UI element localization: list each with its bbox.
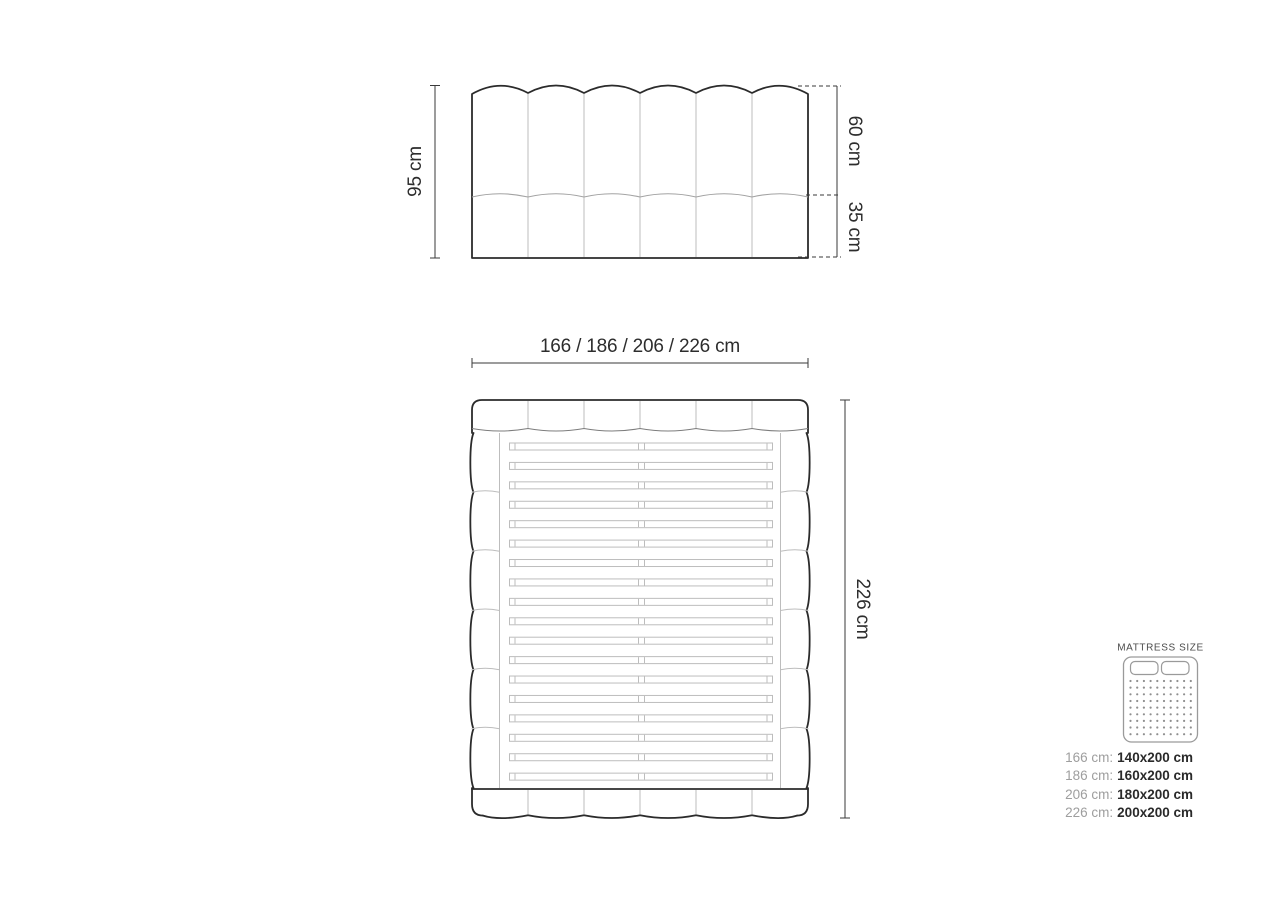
- pillow-icon-left: [1131, 662, 1159, 675]
- width-dim-label: 166 / 186 / 206 / 226 cm: [540, 336, 740, 357]
- slat: [510, 462, 773, 469]
- mattress-dot: [1136, 713, 1138, 715]
- mattress-dot: [1170, 680, 1172, 682]
- mattress-dot: [1143, 693, 1145, 695]
- rail-joint: [472, 668, 500, 670]
- rail-joint: [781, 491, 809, 493]
- mattress-dot: [1183, 700, 1185, 702]
- mattress-dot: [1170, 700, 1172, 702]
- mattress-dot: [1190, 707, 1192, 709]
- mattress-dot: [1150, 693, 1152, 695]
- lower-dim-label: 35 cm: [844, 202, 865, 253]
- mattress-dot: [1190, 687, 1192, 689]
- slat: [510, 598, 773, 605]
- rail-joint: [472, 727, 500, 729]
- slats: [510, 443, 773, 780]
- mattress-dot: [1150, 726, 1152, 728]
- mattress-dot: [1150, 713, 1152, 715]
- mattress-dot: [1170, 720, 1172, 722]
- mattress-dot: [1163, 680, 1165, 682]
- mattress-dot: [1150, 680, 1152, 682]
- mattress-dot: [1150, 720, 1152, 722]
- mattress-dot: [1190, 693, 1192, 695]
- mattress-dot: [1143, 707, 1145, 709]
- mattress-dot: [1136, 693, 1138, 695]
- mattress-dot: [1176, 707, 1178, 709]
- right-rail-joints: [781, 491, 809, 729]
- upper-dim-label: 60 cm: [844, 116, 865, 167]
- headboard-bar-wave: [472, 429, 808, 432]
- mattress-dot: [1129, 726, 1131, 728]
- mattress-dot: [1163, 713, 1165, 715]
- mattress-dot: [1183, 707, 1185, 709]
- mattress-dot: [1163, 693, 1165, 695]
- footboard-dividers: [528, 790, 752, 814]
- mattress-dot: [1176, 733, 1178, 735]
- mattress-dot: [1156, 680, 1158, 682]
- mattress-dot: [1143, 713, 1145, 715]
- slat: [510, 443, 773, 450]
- mattress-dot: [1150, 733, 1152, 735]
- mattress-dot: [1183, 713, 1185, 715]
- rail-joint: [472, 550, 500, 552]
- mattress-size-row: 186 cm:160x200 cm: [1065, 767, 1193, 785]
- slat-outline: [510, 521, 773, 528]
- length-dimension: 226 cm: [840, 400, 873, 818]
- mattress-dot: [1170, 733, 1172, 735]
- mattress-dot: [1190, 700, 1192, 702]
- mattress-dot: [1156, 687, 1158, 689]
- slat-outline: [510, 676, 773, 683]
- left-rail-joints: [472, 491, 500, 729]
- mattress-dot: [1143, 680, 1145, 682]
- mattress-size-row: 166 cm:140x200 cm: [1065, 749, 1193, 767]
- mattress-dot: [1163, 700, 1165, 702]
- mattress-dot: [1176, 687, 1178, 689]
- footboard-bottom-wave: [483, 815, 797, 818]
- slat: [510, 482, 773, 489]
- mattress-dot: [1129, 687, 1131, 689]
- slat: [510, 773, 773, 780]
- mattress-dot: [1183, 687, 1185, 689]
- mattress-dot: [1183, 693, 1185, 695]
- mattress-dot: [1156, 693, 1158, 695]
- size-value: 180x200 cm: [1117, 787, 1193, 802]
- mattress-dot: [1176, 680, 1178, 682]
- mattress-dot: [1190, 733, 1192, 735]
- mattress-dot: [1136, 707, 1138, 709]
- mattress-dot: [1156, 733, 1158, 735]
- bed-dimensions-diagram: 95 cm 60 cm 35 cm 166 / 186 / 206 / 226 …: [0, 0, 1280, 905]
- rail-joint: [472, 609, 500, 611]
- slat: [510, 734, 773, 741]
- legend: MATTRESS SIZE: [1117, 643, 1204, 743]
- mattress-dot: [1136, 700, 1138, 702]
- mattress-dot: [1163, 726, 1165, 728]
- mattress-dot: [1183, 680, 1185, 682]
- mattress-dot: [1163, 687, 1165, 689]
- mattress-size-row: 206 cm:180x200 cm: [1065, 786, 1193, 804]
- mattress-dot: [1129, 707, 1131, 709]
- slat-outline: [510, 579, 773, 586]
- footboard-left-corner: [472, 788, 483, 816]
- pillow-icon-right: [1162, 662, 1190, 675]
- slat-outline: [510, 637, 773, 644]
- slat: [510, 618, 773, 625]
- slat: [510, 676, 773, 683]
- rail-joint: [781, 550, 809, 552]
- mattress-dot: [1190, 713, 1192, 715]
- slat-outline: [510, 540, 773, 547]
- rail-joint: [472, 491, 500, 493]
- slat-outline: [510, 695, 773, 702]
- slat: [510, 754, 773, 761]
- mattress-dot: [1143, 687, 1145, 689]
- mattress-dot: [1156, 720, 1158, 722]
- mattress-dot: [1170, 726, 1172, 728]
- slat: [510, 521, 773, 528]
- mattress-dot: [1156, 700, 1158, 702]
- mattress-dot: [1183, 733, 1185, 735]
- size-key: 206 cm:: [1065, 787, 1113, 802]
- legend-title: MATTRESS SIZE: [1117, 643, 1204, 654]
- mattress-dot: [1163, 733, 1165, 735]
- size-key: 226 cm:: [1065, 805, 1113, 820]
- slat-outline: [510, 443, 773, 450]
- slat: [510, 579, 773, 586]
- mattress-dot: [1170, 707, 1172, 709]
- mattress-dot: [1143, 726, 1145, 728]
- mattress-dot: [1150, 707, 1152, 709]
- slat-outline: [510, 773, 773, 780]
- width-dimension: 166 / 186 / 206 / 226 cm: [472, 336, 808, 368]
- slat-outline: [510, 618, 773, 625]
- rail-joint: [781, 609, 809, 611]
- mattress-top-view-icon: [1124, 657, 1198, 742]
- size-value: 200x200 cm: [1117, 805, 1193, 820]
- slat-outline: [510, 560, 773, 567]
- height-dim-label: 95 cm: [405, 146, 426, 197]
- slat: [510, 540, 773, 547]
- slat-outline: [510, 754, 773, 761]
- slat-outline: [510, 482, 773, 489]
- size-key: 166 cm:: [1065, 750, 1113, 765]
- slat: [510, 657, 773, 664]
- mattress-dot: [1190, 726, 1192, 728]
- mattress-dot: [1163, 720, 1165, 722]
- mattress-size-table: 166 cm:140x200 cm 186 cm:160x200 cm 206 …: [1065, 749, 1193, 823]
- mattress-dot: [1170, 687, 1172, 689]
- mattress-dot: [1136, 733, 1138, 735]
- mattress-dot: [1129, 680, 1131, 682]
- mattress-dot: [1143, 700, 1145, 702]
- mattress-dot: [1176, 713, 1178, 715]
- slat-outline: [510, 501, 773, 508]
- mattress-dot: [1190, 720, 1192, 722]
- mattress-dot: [1143, 720, 1145, 722]
- mattress-dot: [1156, 707, 1158, 709]
- mattress-dot: [1183, 720, 1185, 722]
- mattress-dot: [1143, 733, 1145, 735]
- height-dimension: 95 cm: [405, 86, 440, 259]
- slat: [510, 637, 773, 644]
- mattress-dot: [1129, 733, 1131, 735]
- rail-joint: [781, 668, 809, 670]
- slat: [510, 715, 773, 722]
- mattress-dot: [1176, 726, 1178, 728]
- size-key: 186 cm:: [1065, 768, 1113, 783]
- footboard-right-corner: [797, 788, 808, 816]
- mattress-dot: [1190, 680, 1192, 682]
- size-value: 140x200 cm: [1117, 750, 1193, 765]
- length-dim-label: 226 cm: [852, 578, 873, 639]
- slat-outline: [510, 462, 773, 469]
- mattress-dot: [1163, 707, 1165, 709]
- slat-outline: [510, 715, 773, 722]
- mattress-dot: [1129, 713, 1131, 715]
- mattress-dot: [1136, 720, 1138, 722]
- mattress-dot: [1170, 693, 1172, 695]
- mattress-dot: [1150, 687, 1152, 689]
- mattress-dot: [1156, 726, 1158, 728]
- slat-outline: [510, 598, 773, 605]
- mattress-dot: [1129, 693, 1131, 695]
- slat: [510, 560, 773, 567]
- mattress-dot: [1170, 713, 1172, 715]
- mattress-dot: [1176, 693, 1178, 695]
- mattress-dot: [1156, 713, 1158, 715]
- mattress-dot: [1136, 680, 1138, 682]
- slat-outline: [510, 734, 773, 741]
- rail-joint: [781, 727, 809, 729]
- mattress-dot: [1129, 700, 1131, 702]
- mattress-dot: [1129, 720, 1131, 722]
- slat: [510, 501, 773, 508]
- mattress-dot: [1176, 720, 1178, 722]
- mattress-dot: [1150, 700, 1152, 702]
- headboard-bar-dividers: [528, 401, 752, 428]
- mattress-dot: [1183, 726, 1185, 728]
- mattress-size-row: 226 cm:200x200 cm: [1065, 804, 1193, 822]
- mattress-dot: [1176, 700, 1178, 702]
- slat-outline: [510, 657, 773, 664]
- top-view: 166 / 186 / 206 / 226 cm 226 cm: [470, 336, 873, 818]
- mattress-dot: [1136, 687, 1138, 689]
- slat: [510, 695, 773, 702]
- size-value: 160x200 cm: [1117, 768, 1193, 783]
- front-view: 95 cm 60 cm 35 cm: [405, 86, 865, 259]
- mattress-dot: [1136, 726, 1138, 728]
